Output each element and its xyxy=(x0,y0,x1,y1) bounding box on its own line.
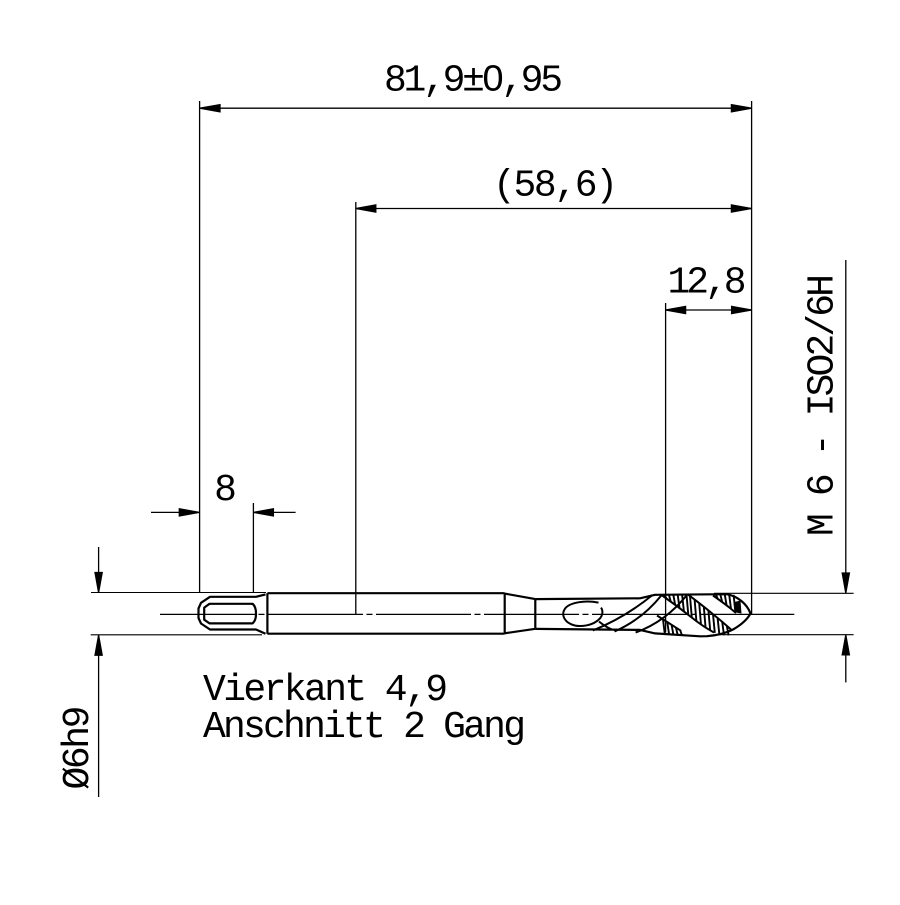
svg-text:8: 8 xyxy=(214,469,237,512)
svg-text:81,9±0,95: 81,9±0,95 xyxy=(384,59,563,102)
svg-text:M 6 - ISO2/6H: M 6 - ISO2/6H xyxy=(802,274,845,536)
svg-text:Anschnitt 2 Gang: Anschnitt 2 Gang xyxy=(203,706,526,749)
svg-text:Ø6h9: Ø6h9 xyxy=(57,706,100,790)
svg-text:(58,6): (58,6) xyxy=(493,164,618,207)
svg-text:12,8: 12,8 xyxy=(668,261,747,304)
